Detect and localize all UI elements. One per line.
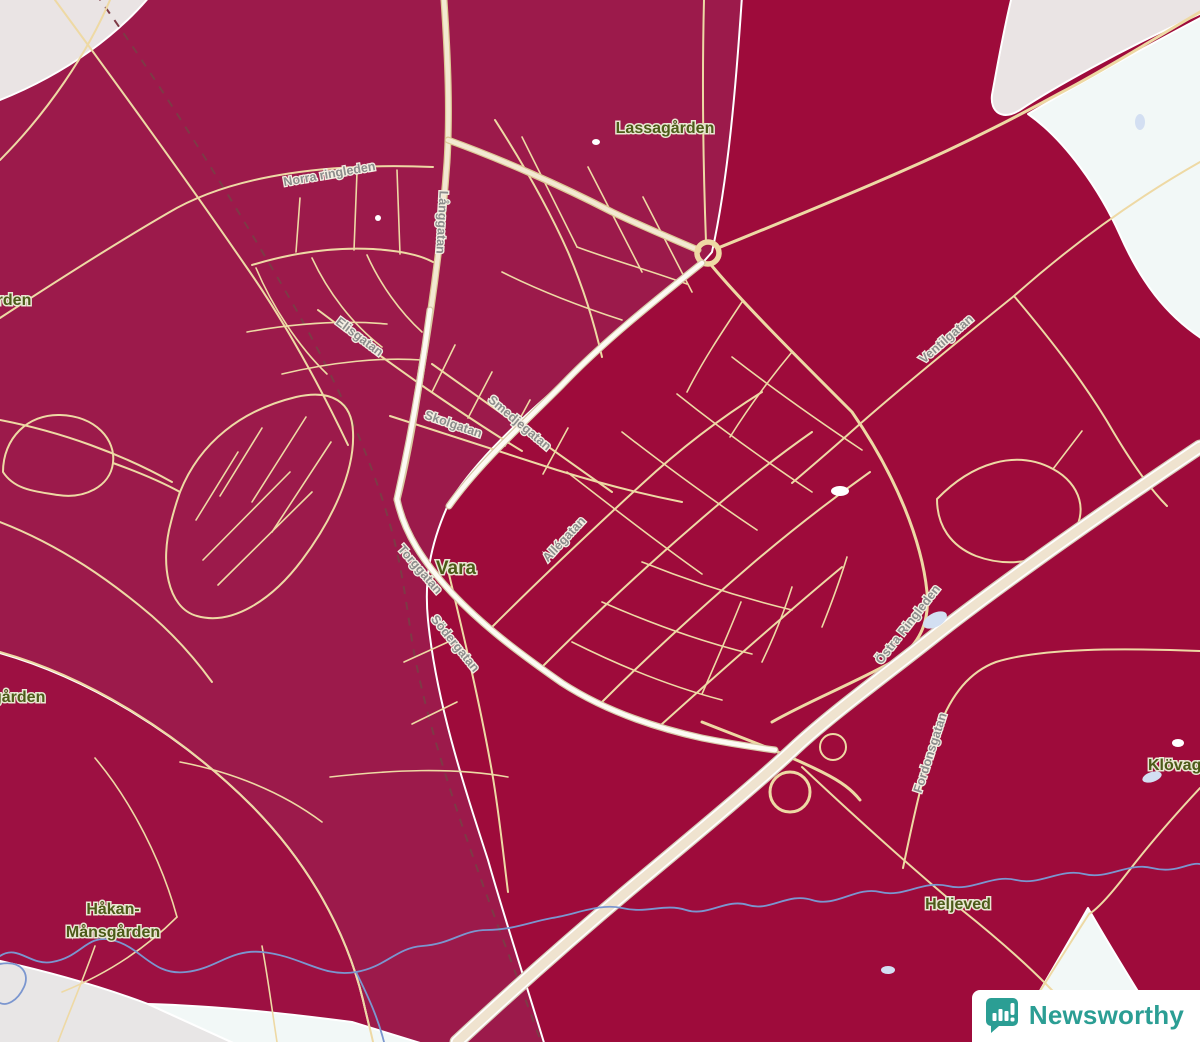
map-svg: Norra ringleden Långgatan Elisgatan Skol… <box>0 0 1200 1042</box>
map-regions <box>0 0 1200 1042</box>
place-label-vara: Vara <box>436 558 477 579</box>
place-label-klovagarden: Klövagården <box>1148 756 1200 774</box>
place-label-hakan-line2: Månsgården <box>66 923 160 941</box>
map-canvas[interactable]: Norra ringleden Långgatan Elisgatan Skol… <box>0 0 1200 1042</box>
newsworthy-wordmark: Newsworthy <box>1029 1000 1184 1031</box>
place-label-lassagarden: Lassagården <box>616 119 715 137</box>
place-label-hakan-line1: Håkan- <box>86 900 139 918</box>
pond <box>1135 114 1145 130</box>
place-label-left-upper: gården <box>0 291 31 309</box>
pond <box>881 966 895 974</box>
newsworthy-logo[interactable]: Newsworthy <box>972 990 1200 1042</box>
newsworthy-icon <box>984 996 1020 1034</box>
place-label-left-lower: gården <box>0 688 45 706</box>
place-label-heljeved: Heljeved <box>925 896 991 913</box>
